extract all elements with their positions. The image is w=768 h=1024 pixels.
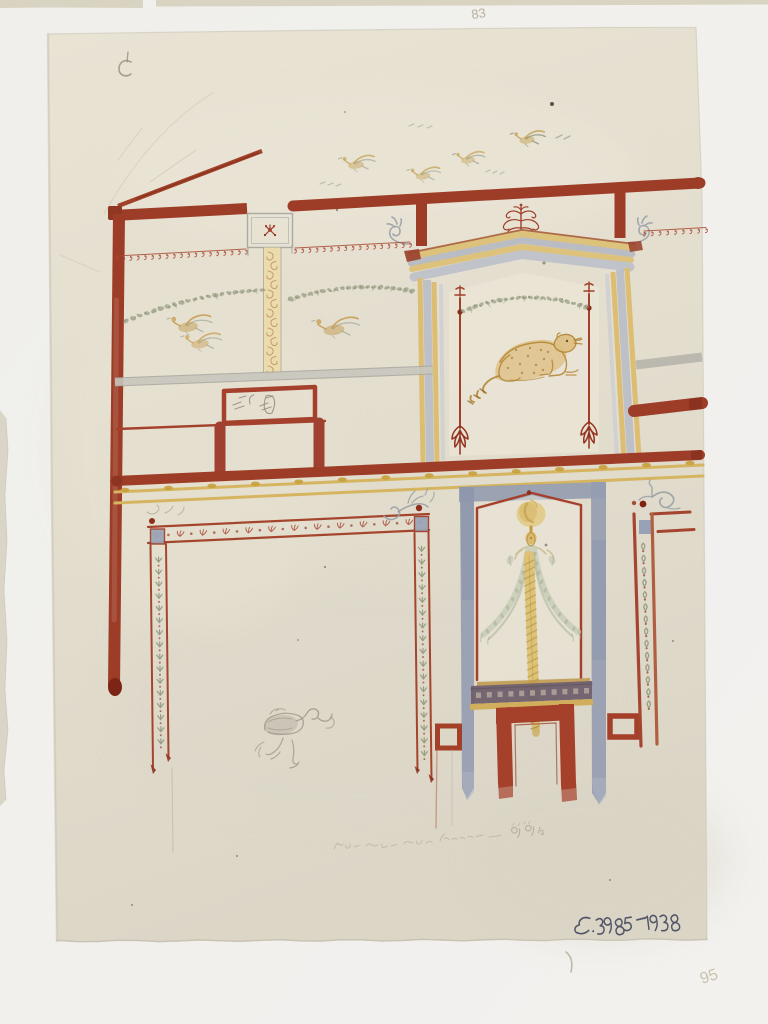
svg-text:83: 83: [470, 5, 486, 22]
